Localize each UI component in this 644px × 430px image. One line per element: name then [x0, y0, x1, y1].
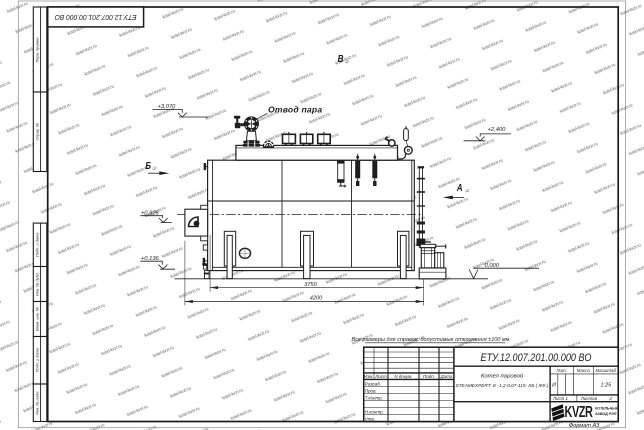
svg-text:Масса: Масса [577, 368, 591, 373]
svg-text:Масштаб: Масштаб [595, 368, 616, 373]
svg-text:Взам. инв. №: Взам. инв. № [34, 306, 39, 331]
svg-text:Инв. № подл.: Инв. № подл. [34, 391, 39, 415]
svg-text:ЕТУ.12.007.201.00.000 ВО: ЕТУ.12.007.201.00.000 ВО [54, 13, 137, 20]
svg-text:ЗАВОД РЭП: ЗАВОД РЭП [595, 412, 617, 416]
svg-text:КОТЕЛЬНЫЙ: КОТЕЛЬНЫЙ [595, 407, 619, 411]
svg-text:ЕТУ.12.007.201.00.000 ВО: ЕТУ.12.007.201.00.000 ВО [481, 352, 593, 364]
svg-text:Отвод пара: Отвод пара [268, 104, 322, 114]
svg-text:⑵: ⑵ [152, 167, 156, 171]
svg-text:Инв. № дубл.: Инв. № дубл. [34, 272, 39, 296]
svg-text:Листов: Листов [580, 396, 598, 401]
svg-text:+2,400: +2,400 [488, 127, 507, 133]
svg-text:В: В [338, 53, 344, 64]
svg-text:Лист 1: Лист 1 [552, 396, 569, 401]
svg-text:Котел паровой: Котел паровой [481, 373, 524, 380]
svg-text:Перв. примен.: Перв. примен. [34, 37, 39, 63]
svg-text:Подп. и дата: Подп. и дата [34, 232, 39, 257]
svg-text:Подп. и дата: Подп. и дата [34, 347, 39, 372]
svg-text:3750: 3750 [304, 282, 317, 288]
svg-text:STEAMEXPERT- Е -1,2-0,07-115-: STEAMEXPERT- Е -1,2-0,07-115- КБ ( ЖК ) [456, 383, 549, 389]
svg-text:KVZR: KVZR [565, 404, 593, 421]
svg-text:2: 2 [609, 396, 613, 401]
svg-text:Дата: Дата [439, 374, 452, 379]
svg-text:⑵: ⑵ [345, 60, 349, 64]
svg-text:Разраб.: Разраб. [365, 382, 381, 387]
svg-text:И: И [552, 383, 556, 389]
svg-text:Формат А3: Формат А3 [569, 423, 600, 429]
svg-text:4200: 4200 [310, 296, 323, 302]
svg-text:Лит.: Лит. [556, 368, 567, 373]
svg-text:Справ. №: Справ. № [34, 122, 39, 140]
svg-text:Изм.: Изм. [364, 374, 374, 379]
svg-text:⑵: ⑵ [465, 189, 469, 193]
svg-text:Б: Б [145, 160, 151, 171]
svg-text:Н.контр.: Н.контр. [365, 410, 384, 415]
svg-text:Все размеры для справок, допус: Все размеры для справок, допустимые откл… [352, 337, 510, 343]
svg-text:Т.контр.: Т.контр. [365, 396, 383, 401]
svg-text:N докум.: N докум. [394, 374, 412, 379]
svg-text:Пров.: Пров. [365, 389, 377, 394]
svg-text:1:25: 1:25 [600, 383, 612, 389]
svg-text:Утв.: Утв. [365, 417, 375, 422]
svg-text:Лист: Лист [374, 374, 387, 379]
svg-text:А: А [456, 182, 463, 193]
svg-text:Подп.: Подп. [423, 374, 435, 379]
